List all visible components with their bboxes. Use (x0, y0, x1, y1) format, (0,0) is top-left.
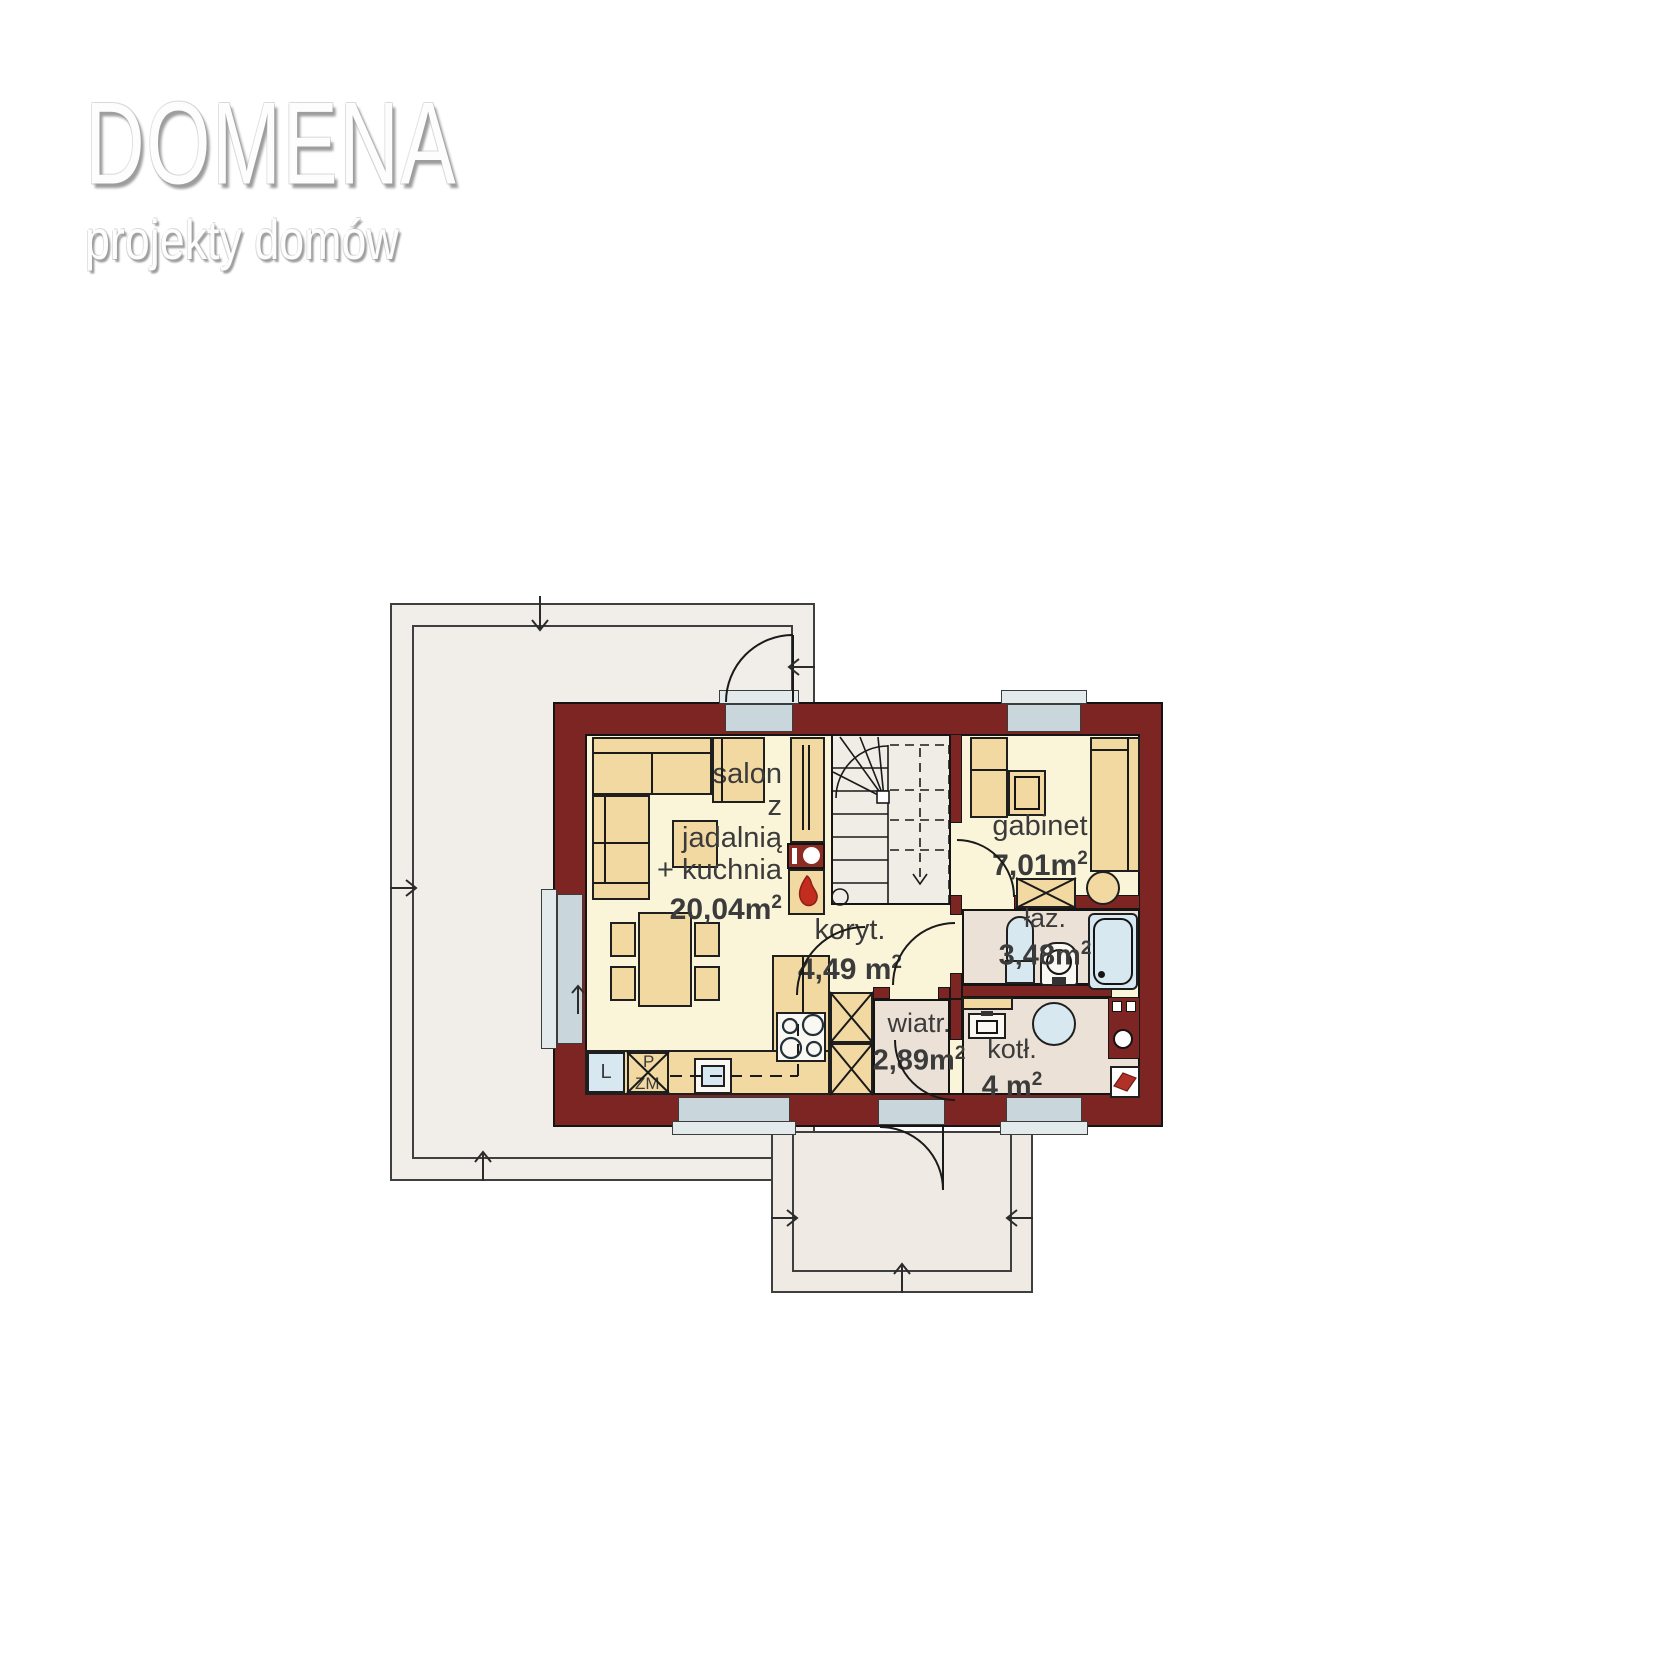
dining-chair (694, 966, 720, 1001)
dining-chair (610, 966, 636, 1001)
area-sup: 2 (1032, 1069, 1043, 1090)
room-name: gabinet (958, 810, 1122, 842)
area-sup: 2 (891, 952, 902, 973)
area-sup: 2 (1077, 848, 1088, 869)
area-sup: 2 (1081, 938, 1092, 959)
wall-koryt-wiatr-right (938, 987, 950, 999)
window-salon-left (557, 894, 583, 1044)
fireplace (788, 869, 825, 915)
room-label-laz: łaz. 3,48m2 (992, 903, 1098, 972)
room-name: salon (600, 758, 782, 790)
room-name: łaz. (992, 903, 1098, 933)
room-name: jadalnią (600, 822, 782, 854)
dining-chair (610, 922, 636, 957)
room-area: 7,01m2 (958, 842, 1122, 882)
logo-subtitle: projekty domów (85, 207, 467, 272)
window-kitchen-outer-sill (672, 1121, 796, 1135)
oven-label: P (643, 1052, 654, 1072)
logo-title: DOMENA (85, 78, 457, 211)
room-area: 3,48m2 (992, 933, 1098, 972)
window-kotl-outer-sill (1000, 1121, 1088, 1135)
dining-chair (694, 922, 720, 957)
area-value: 4,49 m (798, 953, 891, 986)
window-gabinet (1007, 704, 1081, 732)
media-bar (792, 848, 797, 864)
room-label-wiatr: wiatr. 2,89m2 (866, 1008, 972, 1077)
dishwasher-label: ZM (635, 1074, 660, 1094)
wall-laz-left-bottom (950, 973, 962, 999)
window-kitchen (678, 1097, 790, 1123)
area-value: 3,48m (999, 940, 1081, 972)
utility-sink-tap (981, 1011, 993, 1016)
area-value: 2,89m (873, 1045, 955, 1077)
logo: DOMENA projekty domów (85, 78, 562, 272)
room-name: kotł. (962, 1034, 1062, 1064)
door-entrance-threshold (878, 1099, 945, 1125)
stove (776, 1012, 826, 1062)
window-gabinet-outer-sill (1001, 690, 1087, 704)
utility-sink-basin (976, 1020, 998, 1034)
washbasin-tap (1052, 977, 1066, 985)
room-area: 2,89m2 (866, 1038, 972, 1077)
room-name: koryt. (790, 914, 910, 946)
room-name: z (600, 790, 782, 822)
room-area: 4,49 m2 (790, 946, 910, 986)
area-value: 4 m (982, 1071, 1032, 1103)
chimney-flue-1 (1112, 1001, 1122, 1012)
chimney-block (1108, 997, 1140, 1059)
chimney-flue-2 (1126, 1001, 1136, 1012)
radiator (1110, 1066, 1140, 1098)
window-salon-left-outer-sill (541, 889, 557, 1049)
desk-chair-seat (1014, 776, 1040, 810)
oven-dishwasher-unit: P ZM (627, 1052, 669, 1093)
room-label-koryt: koryt. 4,49 m2 (790, 914, 910, 986)
wall-laz-left-top (950, 895, 962, 915)
room-name: wiatr. (866, 1008, 972, 1038)
dining-table (638, 912, 692, 1007)
kitchen-sink-basin (701, 1065, 725, 1087)
door-terrace-threshold (725, 704, 793, 732)
area-value: 7,01m (992, 849, 1077, 882)
room-name: + kuchnia (600, 854, 782, 886)
floor-plan-page: DOMENA projekty domów (0, 0, 1680, 1680)
area-value: 20,04m (670, 893, 772, 926)
room-label-kotl: kotł. 4 m2 (962, 1034, 1062, 1103)
room-label-salon: salon z jadalnią + kuchnia 20,04m2 (600, 758, 782, 926)
bathtub-drain (1098, 971, 1105, 978)
tall-cabinet (790, 737, 825, 843)
door-terrace-outer-sill (719, 690, 799, 704)
room-area: 4 m2 (962, 1064, 1062, 1103)
fridge-label: L (600, 1061, 611, 1084)
area-sup: 2 (771, 892, 782, 913)
fridge: L (587, 1052, 625, 1093)
room-label-gabinet: gabinet 7,01m2 (958, 810, 1122, 882)
porch-front-inner-line (792, 1131, 1012, 1272)
media-dot (803, 847, 820, 864)
media-unit (787, 843, 825, 869)
wall-koryt-wiatr-left (873, 987, 890, 999)
room-area: 20,04m2 (600, 886, 782, 926)
desk (970, 737, 1008, 818)
stairs (831, 734, 951, 905)
chimney-flue-round (1113, 1029, 1133, 1049)
